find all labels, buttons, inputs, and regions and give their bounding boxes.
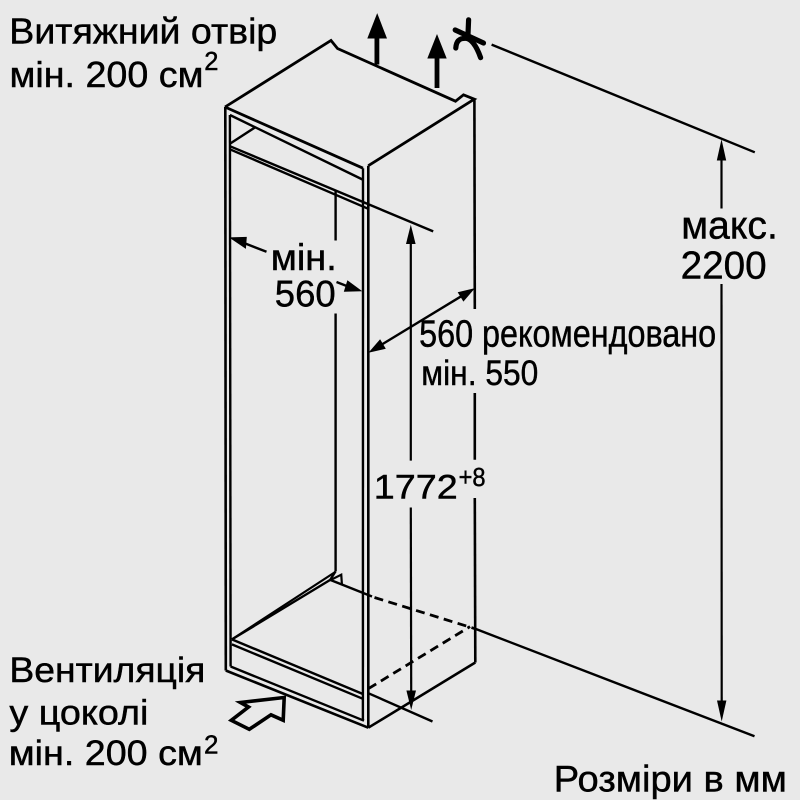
svg-text:у цоколі: у цоколі	[9, 694, 148, 733]
svg-text:мін. 550: мін. 550	[421, 353, 538, 393]
svg-text:макс.: макс.	[681, 205, 778, 248]
svg-text:мін.: мін.	[271, 237, 337, 278]
svg-text:560: 560	[275, 274, 336, 315]
svg-text:мін. 200 см: мін. 200 см	[10, 54, 204, 95]
svg-text:мін. 200 см: мін. 200 см	[9, 734, 203, 773]
svg-text:Вентиляція: Вентиляція	[9, 651, 205, 690]
svg-text:2: 2	[204, 48, 218, 76]
svg-text:+8: +8	[459, 462, 486, 492]
svg-text:1772: 1772	[374, 469, 458, 507]
svg-text:Розміри в мм: Розміри в мм	[554, 759, 787, 800]
svg-text:Витяжний отвір: Витяжний отвір	[9, 11, 277, 52]
svg-text:2200: 2200	[681, 245, 767, 288]
svg-text:2: 2	[204, 730, 218, 760]
svg-text:560 рекомендовано: 560 рекомендовано	[419, 314, 716, 356]
